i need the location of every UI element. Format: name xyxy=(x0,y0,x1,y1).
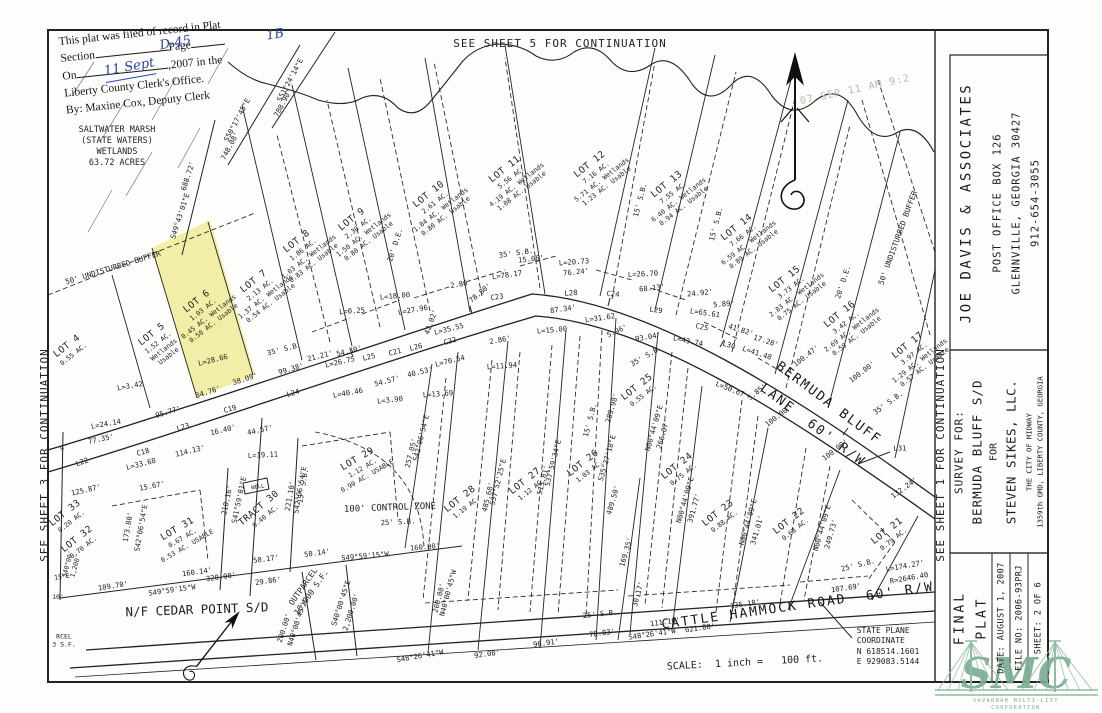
map-label: 289.98' xyxy=(603,392,620,424)
recording-line-3b: ,2007 in the xyxy=(167,54,223,72)
sheet-label: SHEET: xyxy=(1033,620,1043,653)
map-label: C21 xyxy=(388,346,403,358)
handwritten-page: 1B xyxy=(265,24,286,46)
map-label: L=13.69 xyxy=(423,388,454,399)
map-label: L=35.55 xyxy=(433,321,465,337)
map-label: L26 xyxy=(409,341,424,353)
map-label: 489.50' xyxy=(604,484,621,516)
map-label: 25' S.B. xyxy=(582,608,617,621)
continuation-note-right: SEE SHEET 1 FOR CONTINUATION xyxy=(934,348,948,561)
map-label: 54.57' xyxy=(373,373,400,388)
map-label: 109.70' xyxy=(97,579,128,593)
recording-line-2a: Section xyxy=(60,50,96,66)
control-zone-label: 100' CONTROL ZONE xyxy=(344,502,436,517)
map-label: C23 xyxy=(490,291,504,302)
map-label: 9' xyxy=(59,443,69,454)
map-label: 125.87' xyxy=(70,482,102,498)
map-label: LOT 21 0.79 AC. xyxy=(864,512,916,559)
map-label: 96.91' xyxy=(532,637,559,650)
map-label: 688.72' xyxy=(179,160,197,192)
firm-address-1: POST OFFICE BOX 126 xyxy=(991,133,1003,272)
map-label: L=3.90 xyxy=(377,394,404,406)
firm-name: JOE DAVIS & ASSOCIATES xyxy=(958,82,974,322)
map-label: 92.08' xyxy=(473,648,500,661)
map-label: 10' xyxy=(52,593,64,601)
map-label: L=70.54 xyxy=(434,353,466,369)
file-label: FILE NO: xyxy=(1014,626,1024,671)
map-label: L=50.67 xyxy=(714,379,746,399)
map-label: LOT 29 1.12 AC. 0.90 AC. USABLE xyxy=(315,431,409,502)
map-label: S49°59'15"W xyxy=(148,582,196,598)
plat-date-cell: DATE: AUGUST 1, 2007 xyxy=(992,553,1010,682)
subdivision-name: BERMUDA BLUFF S/D xyxy=(969,379,984,524)
map-label: 30.17' xyxy=(630,580,646,608)
map-label: 93.04' xyxy=(634,330,661,344)
state-plane-note: STATE PLANE COORDINATE N 618514.1601 E 9… xyxy=(857,626,920,668)
map-label: L=18.00 xyxy=(380,290,411,302)
plat-sheet: SMC SAVANNAH MULTI-LIST CORPORATION SEE … xyxy=(0,0,1102,713)
scale-note: SCALE: 1 inch = 100 ft. xyxy=(666,652,823,673)
map-label: L=43.74 xyxy=(672,333,704,348)
map-label: 34.76' xyxy=(194,384,222,401)
map-label: RCEL 3 S.F. xyxy=(52,633,75,650)
map-label: L=28.66 xyxy=(197,352,229,368)
map-label: 35' S.B. xyxy=(629,343,664,368)
plat-sheet-cell: SHEET: 2 OF 6 xyxy=(1028,553,1048,682)
survey-for-conj: FOR xyxy=(988,442,999,460)
map-label: C19 xyxy=(222,403,237,416)
map-label: L=27.96 xyxy=(397,303,428,317)
recording-line-3a: On xyxy=(62,69,77,82)
plat-file-cell: FILE NO: 2006-93PRJ xyxy=(1010,553,1028,682)
map-label: S49°59'15"W xyxy=(341,549,389,562)
map-label: L29 xyxy=(649,304,663,315)
map-label: LOT 31 0.67 AC. 0.53 AC. USABLE xyxy=(135,501,229,572)
map-label: 748.08' xyxy=(219,130,241,161)
map-label: L=40.46 xyxy=(332,386,363,400)
survey-for-heading: SURVEY FOR: xyxy=(952,410,965,494)
map-label: 87.34' xyxy=(549,303,576,316)
map-label: L=0.25 xyxy=(339,305,366,316)
map-label: 114.13' xyxy=(174,443,206,459)
map-label: 40.53' xyxy=(406,364,433,379)
map-label: 25' S.B. xyxy=(380,516,415,527)
firm-block: JOE DAVIS & ASSOCIATES POST OFFICE BOX 1… xyxy=(950,55,1048,350)
buffer-note-west: 50' UNDISTURBED BUFFER xyxy=(64,249,162,287)
map-label: L=31.62 xyxy=(584,311,615,324)
map-label: C22 xyxy=(442,335,457,348)
map-label: C25 xyxy=(695,321,710,333)
map-label: L23 xyxy=(175,421,190,434)
plat-type: FINAL PLAT xyxy=(949,590,993,644)
map-label: L=24.14 xyxy=(90,417,121,431)
well-label: WELL xyxy=(251,484,265,493)
map-label: LOT 24 0.75 AC. xyxy=(654,447,706,494)
client-name: STEVEN SIKES, LLC. xyxy=(1003,379,1018,523)
date-value: AUGUST 1, 2007 xyxy=(996,562,1006,640)
map-label: C24 xyxy=(606,289,620,299)
map-label: S48°26'41"W xyxy=(396,647,445,664)
map-label: 169.35' xyxy=(617,536,634,568)
map-label: L28 xyxy=(564,288,578,298)
map-label: 160.00' xyxy=(410,541,441,553)
map-label: S49°43'01"E xyxy=(168,192,192,240)
outparcel-label: OUTPARCEL 16,000 S.F. xyxy=(284,562,331,617)
map-label: 68.13' xyxy=(639,282,666,294)
map-label: L=15.00 xyxy=(537,324,568,336)
map-label: 15'E xyxy=(54,572,71,583)
map-label: 44.57' xyxy=(246,423,273,438)
map-label: 99.38' xyxy=(277,361,305,377)
map-label: 132.24' xyxy=(889,475,919,500)
map-label: 38.09' xyxy=(231,371,259,388)
map-label: 24.92' xyxy=(687,287,714,299)
map-label: 29.86' xyxy=(254,575,281,588)
map-label: 25' S.B. xyxy=(840,556,876,573)
map-label: L=33.68 xyxy=(125,456,157,472)
map-label: L=19.11 xyxy=(248,450,279,461)
date-received-stamp: 07 SEP 11 AM 9:2 xyxy=(799,72,912,108)
buffer-note-east: 50' UNDISTURBED BUFFER xyxy=(876,190,919,287)
map-label: 15.67' xyxy=(138,479,165,493)
adjoiner-cedar-point: N/F CEDAR POINT S/D xyxy=(125,599,268,620)
map-label: 5.89' xyxy=(713,298,735,309)
survey-location: THE CITY OF MIDWAY 1359th GMD, LIBERTY C… xyxy=(1024,376,1046,527)
map-label: 5.96' xyxy=(605,322,629,340)
map-label: L30 xyxy=(721,339,736,352)
map-label: L25 xyxy=(362,351,377,363)
map-label: L=26.70 xyxy=(628,269,659,280)
map-label: L31 xyxy=(894,443,907,452)
map-label: LOT 4 0.55 AC. xyxy=(44,327,96,374)
file-value: 2006-93PRJ xyxy=(1014,565,1024,621)
date-label: DATE: xyxy=(996,645,1006,673)
marsh-note: SALTWATER MARSH (STATE WATERS) WETLANDS … xyxy=(79,125,156,169)
map-label: L=78.17 xyxy=(491,268,522,281)
continuation-note-top: SEE SHEET 5 FOR CONTINUATION xyxy=(453,37,666,51)
plat-type-cell: FINAL PLAT xyxy=(950,553,992,682)
map-label: 41.82' xyxy=(727,322,755,339)
map-label: L=11.94 xyxy=(487,360,518,371)
map-label: L=3.42 xyxy=(116,379,143,393)
firm-address-2: GLENNVILLE, GEORGIA 30427 xyxy=(1010,111,1022,294)
map-label: 78.83' xyxy=(588,627,615,640)
sheet-value: 2 OF 6 xyxy=(1033,581,1043,614)
map-label: L24 xyxy=(285,387,300,400)
firm-phone: 912-654-3055 xyxy=(1029,159,1041,247)
map-label: 35' S.B. xyxy=(266,340,302,357)
map-label: 15' S.B. xyxy=(581,402,599,438)
map-label: 76.24' xyxy=(563,266,590,278)
map-label: 16.40' xyxy=(209,422,236,437)
map-label: LOT 22 0.68 AC. xyxy=(766,502,818,549)
map-label: 2.86' xyxy=(489,334,512,347)
map-label: 50.17' xyxy=(252,553,279,566)
map-label: 2.86' xyxy=(450,278,473,291)
map-label: L22 xyxy=(74,455,89,468)
map-label: 77.35' xyxy=(87,432,114,447)
map-label: 95.77' xyxy=(154,404,182,421)
map-label: 173.80' xyxy=(121,511,135,542)
survey-for-block: SURVEY FOR: BERMUDA BLUFF S/D FOR STEVEN… xyxy=(950,350,1048,553)
map-label: 50.14' xyxy=(303,547,330,560)
map-label: 15.06' xyxy=(518,253,545,265)
